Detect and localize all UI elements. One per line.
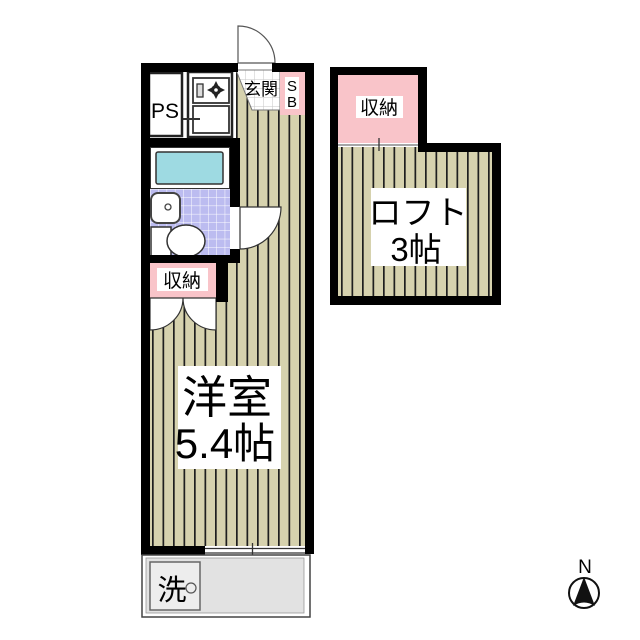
- floorplan-svg: PS 玄関 S B 収納 洋室 5.4帖 洗 収納 ロフト 3帖 N: [0, 0, 640, 640]
- loft-name-label: ロフト: [369, 194, 468, 231]
- closet-label: 収納: [163, 270, 201, 292]
- kitchen-unit: [183, 72, 232, 137]
- washer-label: 洗: [157, 574, 186, 607]
- room-size-label: 5.4帖: [175, 420, 275, 467]
- toilet-bowl-icon: [167, 225, 205, 257]
- room-label: 洋室: [182, 372, 272, 423]
- bathtub: [156, 152, 223, 184]
- loft-closet-label: 収納: [360, 97, 398, 119]
- shoebox-label-s: S: [287, 78, 297, 95]
- loft-unit: [330, 67, 501, 305]
- stove-knob-icon: [197, 84, 203, 97]
- shoebox-label-b: B: [287, 94, 297, 111]
- north-indicator: N: [569, 557, 599, 608]
- north-label: N: [578, 557, 592, 578]
- loft-size-label: 3帖: [390, 231, 441, 268]
- floorplan-canvas: PS 玄関 S B 収納 洋室 5.4帖 洗 収納 ロフト 3帖 N: [0, 0, 640, 640]
- ps-label: PS: [151, 100, 179, 123]
- entrance-door-arc: [238, 26, 275, 63]
- entrance-label: 玄関: [244, 80, 278, 99]
